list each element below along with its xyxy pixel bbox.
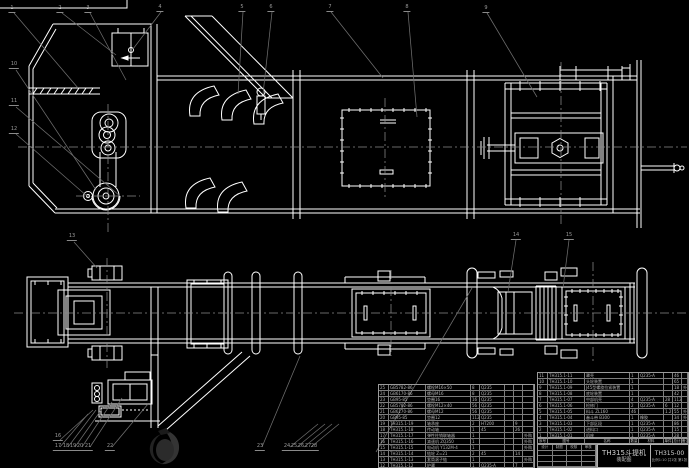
bom-cell-mat: 45 (480, 451, 505, 456)
bom-cell-remark (682, 391, 688, 396)
bom-cell-remark: 外购 (523, 439, 534, 444)
bom-cell-total-weight: 86 (673, 421, 682, 426)
bom-cell-code: GB5782-86 (389, 403, 426, 408)
bom-header-total-weight: 总计 (673, 439, 682, 443)
callout-number: 8 (403, 5, 410, 12)
bom-cell-mat: Q235-A (639, 421, 664, 426)
bom-cell-qty: 4 (630, 397, 639, 402)
bom-cell-mat: 45 (480, 427, 505, 432)
bom-header-name: 名称 (585, 439, 630, 443)
bom-cell-code: TH315.1-08 (548, 391, 585, 396)
bom-cell-unit-weight (505, 385, 514, 390)
bom-cell-qty: 1 (471, 445, 480, 450)
bom-cell-name: 减速机 ZQ350 (426, 439, 471, 444)
bom-cell-total-weight: 112 (673, 397, 682, 402)
bom-header-qty: 数量 (630, 439, 639, 443)
bom-cell-total-weight (514, 457, 523, 462)
bom-cell-unit-weight (505, 415, 514, 420)
bom-cell-no: 22 (379, 403, 389, 408)
bom-cell-total-weight: 15 (673, 427, 682, 432)
bom-cell-code: TH315.1-15 (389, 445, 426, 450)
bom-cell-code: GB5782-86 (389, 385, 426, 390)
bom-cell-qty: 1 (630, 415, 639, 420)
bom-cell-qty: 56 (471, 409, 480, 414)
bom-cell-mat (639, 391, 664, 396)
bom-cell-no: 5 (538, 409, 548, 414)
bom-cell-unit-weight (505, 427, 514, 432)
bom-cell-name: 垫圈16 (426, 397, 471, 402)
bom-cell-mat (480, 445, 505, 450)
bom-cell-code: TH315.1-16 (389, 439, 426, 444)
bom-cell-mat: Q235 (480, 385, 505, 390)
bom-cell-qty: 1 (471, 439, 480, 444)
bom-cell-total-weight (514, 415, 523, 420)
bom-cell-code: TH315.1-12 (389, 463, 426, 468)
bom-cell-name: 罩壳 (585, 373, 630, 378)
bom-cell-code: TH315.1-19 (389, 421, 426, 426)
bom-cell-mat: Q235 (480, 403, 505, 408)
bom-cell-remark: 外购 (682, 409, 688, 414)
bom-cell-qty: 1 (471, 457, 480, 462)
bom-cell-unit-weight: 28 (664, 397, 673, 402)
bom-cell-mat (639, 385, 664, 390)
bom-cell-name: 料斗 ZL160 (585, 409, 630, 414)
bom-cell-remark (523, 409, 534, 414)
bom-cell-no: 9 (538, 385, 548, 390)
bom-cell-mat: Q235 (480, 391, 505, 396)
callout-number: 28 (309, 444, 319, 451)
bom-cell-code: TH315.1-14 (389, 451, 426, 456)
callout-number: 10 (9, 62, 19, 69)
bom-cell-total-weight: 42 (673, 391, 682, 396)
bom-cell-qty: 112 (471, 415, 480, 420)
bom-cell-qty: 1 (630, 379, 639, 384)
bom-cell-name: 套筒滚子链 (426, 457, 471, 462)
title-block: TH315斗提机 装配图 TH315-00 比例1:10 共1张 第1张 (597, 444, 689, 468)
callout-number: 5 (238, 5, 245, 12)
bom-cell-name: 螺栓M12×40 (426, 403, 471, 408)
callout-number: 4 (156, 5, 163, 12)
bom-cell-remark (523, 391, 534, 396)
bom-table-right: 11 TH315.1-11 罩壳 1 Q235-A 46 10 TH315.1-… (537, 372, 689, 438)
bom-cell-mat: Q235-A (639, 427, 664, 432)
bom-cell-unit-weight (505, 397, 514, 402)
bom-cell-unit-weight (505, 421, 514, 426)
bom-header-no: 序号 (538, 439, 548, 443)
bom-cell-no: 23 (379, 397, 389, 402)
callout-number: 3 (84, 6, 91, 13)
bom-cell-remark (523, 421, 534, 426)
bom-cell-name: 下部区段 (585, 421, 630, 426)
bom-cell-qty: 46 (630, 409, 639, 414)
bom-cell-total-weight (514, 391, 523, 396)
bom-cell-remark: 外购 (523, 457, 534, 462)
signature-cell (582, 462, 597, 468)
callout-number: 15 (564, 233, 574, 240)
bom-cell-name: 进料口 (585, 427, 630, 432)
bom-cell-name: 畚斗带 B300 (585, 415, 630, 420)
bom-cell-remark (682, 397, 688, 402)
bom-cell-remark (523, 385, 534, 390)
bom-cell-code: TH315.1-11 (548, 373, 585, 378)
bom-cell-name: 头轮装置 (585, 379, 630, 384)
bom-cell-name: 传动轴 (426, 427, 471, 432)
bom-cell-name: 弹性柱销联轴器 (426, 433, 471, 438)
bom-cell-no: 15 (379, 445, 389, 450)
bom-cell-remark (523, 403, 534, 408)
signature-cell (567, 462, 582, 468)
bom-cell-code: GB6170-86 (389, 409, 426, 414)
bom-cell-total-weight: 12 (673, 403, 682, 408)
bom-cell-qty: 1 (630, 427, 639, 432)
bom-cell-unit-weight (664, 379, 673, 384)
bom-cell-total-weight (514, 385, 523, 390)
bom-cell-total-weight: 65 (673, 379, 682, 384)
bom-cell-qty: 1 (471, 433, 480, 438)
callout-number: 6 (267, 5, 274, 12)
bom-cell-code: TH315.1-03 (548, 421, 585, 426)
callout-number: 21 (83, 444, 93, 451)
bom-cell-qty: 1 (630, 373, 639, 378)
bom-cell-no: 14 (379, 451, 389, 456)
bom-cell-code: TH315.1-13 (389, 457, 426, 462)
bom-cell-total-weight: 46 (673, 373, 682, 378)
bom-cell-unit-weight (664, 421, 673, 426)
bom-header-remark: 备注 (682, 439, 688, 443)
bom-cell-name: 中部机壳 (585, 397, 630, 402)
callout-number: 16 (53, 434, 63, 441)
bom-cell-unit-weight (505, 391, 514, 396)
bom-cell-remark: 外购 (682, 385, 688, 390)
bom-cell-mat: Q235-A (639, 403, 664, 408)
bom-cell-qty: 1 (471, 463, 480, 468)
document-type: 装配图 (616, 457, 631, 463)
bom-cell-name: 链轮 Z=21 (426, 451, 471, 456)
bom-cell-name: 轴承座 (426, 421, 471, 426)
callout-number: 14 (511, 233, 521, 240)
bom-cell-mat (639, 379, 664, 384)
bom-cell-mat: HT200 (480, 421, 505, 426)
callout-number: 23 (255, 444, 265, 451)
bom-cell-qty: 1 (630, 385, 639, 390)
bom-cell-no: 3 (538, 421, 548, 426)
bom-cell-unit-weight (664, 427, 673, 432)
bom-cell-remark (523, 463, 534, 468)
bom-cell-total-weight: 18 (673, 385, 682, 390)
bom-cell-no: 6 (538, 403, 548, 408)
bom-header-unit-weight: 单件 (664, 439, 673, 443)
bom-cell-total-weight (514, 439, 523, 444)
bom-cell-total-weight: 26 (514, 427, 523, 432)
bom-cell-name: 螺母M12 (426, 409, 471, 414)
callout-number: 13 (67, 234, 77, 241)
bom-cell-code: TH315.1-10 (548, 379, 585, 384)
bom-cell-qty: 16 (471, 397, 480, 402)
bom-cell-no: 11 (538, 373, 548, 378)
bom-cell-no: 13 (379, 457, 389, 462)
bom-cell-no: 21 (379, 409, 389, 414)
bom-cell-unit-weight (505, 439, 514, 444)
callout-number: 2 (56, 6, 63, 13)
bom-cell-total-weight: 9 (514, 421, 523, 426)
bom-cell-unit-weight (664, 391, 673, 396)
bom-cell-mat (480, 433, 505, 438)
bom-cell-remark (682, 403, 688, 408)
bom-cell-mat: Q235-A (639, 373, 664, 378)
bom-cell-remark (682, 421, 688, 426)
product-title: TH315斗提机 (602, 449, 646, 457)
bom-cell-mat: Q235 (480, 397, 505, 402)
callout-number: 12 (9, 127, 19, 134)
bom-cell-mat (639, 409, 664, 414)
bom-cell-remark (523, 451, 534, 456)
bom-cell-mat: Q235-A (639, 397, 664, 402)
bom-cell-name: 电动机 Y132M-4 (426, 445, 471, 450)
bom-cell-mat (480, 457, 505, 462)
bom-cell-total-weight (514, 433, 523, 438)
title-block-number-cell: TH315-00 比例1:10 共1张 第1张 (651, 445, 688, 467)
bom-cell-no: 19 (379, 421, 389, 426)
bom-cell-qty: 2 (630, 403, 639, 408)
bom-cell-mat: Q235-A (480, 463, 505, 468)
bom-cell-no: 2 (538, 427, 548, 432)
bom-cell-code: TH315.1-18 (389, 427, 426, 432)
bom-cell-unit-weight (505, 409, 514, 414)
centerlines (14, 62, 687, 368)
bom-cell-total-weight (514, 397, 523, 402)
bom-cell-total-weight: 7 (514, 463, 523, 468)
bom-cell-total-weight (514, 409, 523, 414)
bom-cell-unit-weight (505, 457, 514, 462)
bom-cell-unit-weight (505, 403, 514, 408)
bom-cell-remark (682, 427, 688, 432)
bom-cell-unit-weight (664, 415, 673, 420)
bom-cell-code: TH315.1-02 (548, 427, 585, 432)
watermark-logo (150, 428, 179, 464)
bom-cell-no: 7 (538, 397, 548, 402)
bom-cell-name: 底轮装置 (585, 391, 630, 396)
bom-cell-qty: 8 (471, 385, 480, 390)
bom-header-code: 图号 (548, 439, 585, 443)
cad-drawing-canvas: 1 2 3 4 5 6 7 8 9 10 11 12 13 14 15 (0, 0, 689, 468)
bom-cell-unit-weight (505, 463, 514, 468)
bom-cell-qty: 8 (471, 391, 480, 396)
bom-cell-remark (523, 415, 534, 420)
bom-cell-remark: 外购 (682, 415, 688, 420)
bom-cell-no: 24 (379, 391, 389, 396)
callout-number: 7 (326, 5, 333, 12)
bom-cell-mat (480, 439, 505, 444)
bom-cell-total-weight: 34 (673, 415, 682, 420)
bom-cell-code: TH315.1-17 (389, 433, 426, 438)
bom-cell-total-weight (514, 403, 523, 408)
bom-cell-name: 检修门 (585, 403, 630, 408)
bom-cell-name: 护罩 (426, 463, 471, 468)
bom-cell-name: J45型螺旋拉紧装置 (585, 385, 630, 390)
bom-cell-remark: 外购 (523, 433, 534, 438)
bom-cell-no: 18 (379, 427, 389, 432)
callout-number: 1 (8, 6, 15, 13)
bom-table-left: 25 GB5782-86 螺栓M16×50 8 Q235 24 GB6170-8… (378, 384, 535, 468)
bom-cell-unit-weight (505, 433, 514, 438)
bom-cell-remark (682, 373, 688, 378)
drawing-number: TH315-00 (655, 450, 684, 458)
bom-cell-remark (523, 397, 534, 402)
bom-cell-no: 12 (379, 463, 389, 468)
bom-cell-remark (523, 427, 534, 432)
bom-cell-total-weight: 55 (673, 409, 682, 414)
bom-cell-code: GB95-85 (389, 397, 426, 402)
bom-cell-mat: Q235 (480, 415, 505, 420)
signature-cell (538, 462, 553, 468)
bom-cell-name: 螺母M16 (426, 391, 471, 396)
bom-cell-no: 10 (538, 379, 548, 384)
bom-cell-mat: Q235 (480, 409, 505, 414)
bom-cell-no: 25 (379, 385, 389, 390)
signature-cell (553, 462, 568, 468)
bom-cell-unit-weight: 6 (664, 403, 673, 408)
bom-cell-unit-weight: 1.2 (664, 409, 673, 414)
bom-cell-unit-weight (505, 451, 514, 456)
bom-cell-no: 16 (379, 439, 389, 444)
title-block-product-cell: TH315斗提机 装配图 (598, 445, 651, 467)
bom-cell-remark (682, 379, 688, 384)
bom-cell-qty: 2 (471, 451, 480, 456)
bom-header-mat: 材料 (639, 439, 664, 443)
bom-cell-no: 4 (538, 415, 548, 420)
bom-cell-no: 17 (379, 433, 389, 438)
bom-cell-no: 20 (379, 415, 389, 420)
bom-cell-qty: 56 (471, 403, 480, 408)
bom-cell-code: TH315.1-07 (548, 397, 585, 402)
bom-cell-total-weight: 14 (514, 451, 523, 456)
callout-number: 11 (9, 99, 19, 106)
bom-cell-unit-weight (664, 373, 673, 378)
bom-cell-name: 螺栓M16×50 (426, 385, 471, 390)
bom-row: 12 TH315.1-12 护罩 1 Q235-A 7 (379, 463, 534, 468)
callout-number: 9 (482, 6, 489, 13)
bom-cell-remark: 外购 (523, 445, 534, 450)
drawing-footer-note: 比例1:10 共1张 第1张 (652, 458, 688, 463)
bom-cell-total-weight (514, 445, 523, 450)
bom-cell-no: 8 (538, 391, 548, 396)
bom-cell-code: GB95-85 (389, 415, 426, 420)
bom-cell-code: TH315.1-05 (548, 409, 585, 414)
bom-cell-code: TH315.1-06 (548, 403, 585, 408)
bom-cell-code: GB6170-86 (389, 391, 426, 396)
bom-cell-code: TH315.1-09 (548, 385, 585, 390)
bom-cell-name: 垫圈12 (426, 415, 471, 420)
bom-cell-code: TH315.1-04 (548, 415, 585, 420)
bom-cell-qty: 1 (630, 391, 639, 396)
bom-cell-unit-weight (505, 445, 514, 450)
bom-cell-qty: 2 (471, 421, 480, 426)
bom-cell-qty: 1 (471, 427, 480, 432)
signature-grid: 设计 制图 校核 审核 (537, 444, 597, 468)
bom-cell-mat: 橡胶 (639, 415, 664, 420)
bom-cell-unit-weight (664, 385, 673, 390)
bom-cell-qty: 1 (630, 421, 639, 426)
callout-number: 22 (105, 444, 115, 451)
